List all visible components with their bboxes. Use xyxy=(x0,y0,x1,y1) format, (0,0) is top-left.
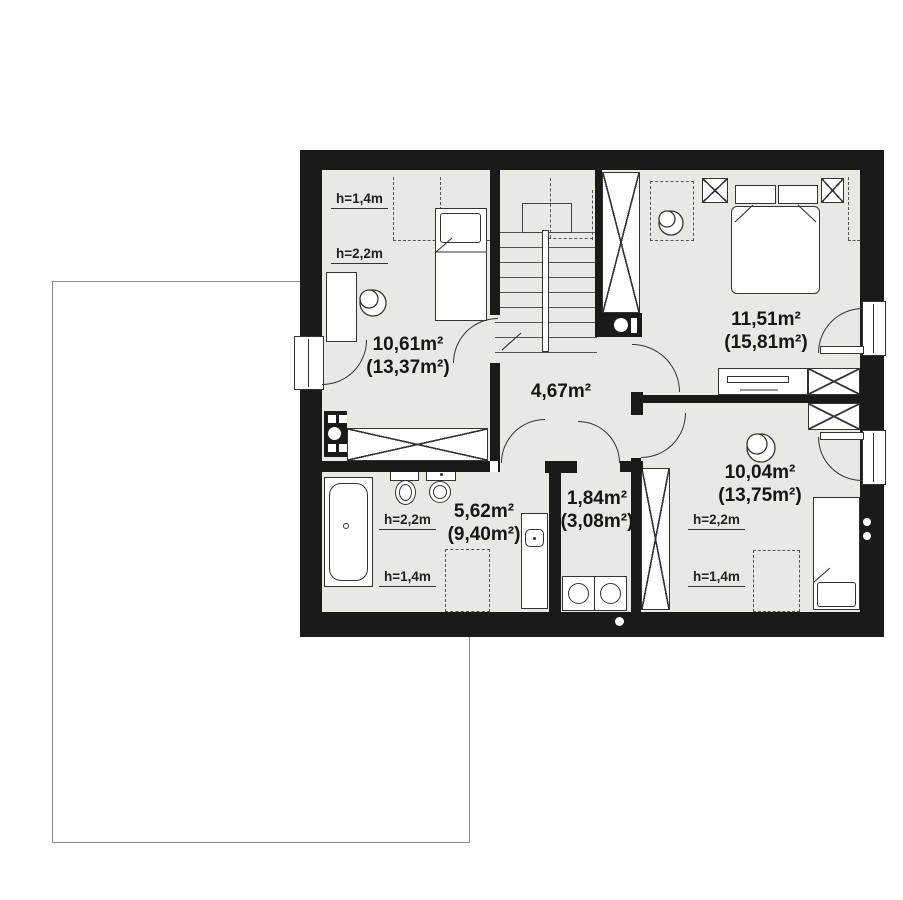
height-label-high-bedroom-left: h=2,2m xyxy=(331,247,388,264)
chimney-flue-4 xyxy=(339,444,347,452)
roof-line-dashed-right xyxy=(848,177,849,240)
wardrobe-hall-column xyxy=(602,172,640,313)
roof-line-dashed-right-h xyxy=(848,240,860,241)
area-value: 11,51m² xyxy=(701,309,831,332)
wall-laundry-bedroom xyxy=(631,458,641,612)
height-label-high-bedroom-bottom: h=2,2m xyxy=(688,513,745,530)
wall-dot-right-2 xyxy=(863,532,871,540)
door-jamb-bathroom xyxy=(490,461,498,472)
stairs-landing xyxy=(522,203,572,233)
window-glass-line xyxy=(308,339,309,387)
chimney-vent-circle xyxy=(614,318,628,332)
bed-double-pillow-right xyxy=(778,185,818,204)
height-label-low-bedroom-left: h=1,4m xyxy=(331,192,388,209)
wardrobe-partition-bottom xyxy=(808,403,860,430)
height-label-low-bathroom: h=1,4m xyxy=(379,570,436,587)
stairs-handrail xyxy=(542,230,549,352)
wall-exterior-right xyxy=(860,150,884,637)
height-label-low-bedroom-bottom: h=1,4m xyxy=(688,570,745,587)
desk-dashed-top-right xyxy=(650,181,694,241)
area-label-bedroom-left: 10,61m² (13,37m²) xyxy=(343,334,473,380)
stairs-dashed-line-1 xyxy=(550,178,551,238)
area-value: 4,67m² xyxy=(496,381,626,404)
bed-pillow-right xyxy=(817,582,856,607)
wall-exterior-left xyxy=(300,150,322,637)
wall-dot-right-1 xyxy=(863,518,871,526)
area-value: 1,84m² xyxy=(532,488,662,511)
wall-hall-stub xyxy=(631,392,643,415)
desk-left xyxy=(326,272,357,342)
bathtub xyxy=(329,483,368,581)
floor-plan-page: 10,61m² (13,37m²) 11,51m² (15,81m²) 4,67… xyxy=(0,0,903,900)
cabinet-top-2 xyxy=(821,178,844,203)
wall-bedroom-left-hall xyxy=(490,363,500,472)
area-label-hallway: 4,67m² xyxy=(496,381,626,404)
area-label-bathroom: 5,62m² (9,40m²) xyxy=(419,501,549,547)
wall-dot-bottom xyxy=(615,617,624,626)
height-label-high-bathroom: h=2,2m xyxy=(379,513,436,530)
bathtub-drain xyxy=(343,523,349,529)
floor-area-value: (13,75m²) xyxy=(695,485,825,508)
toilet-bowl-inner xyxy=(399,484,412,501)
wall-bedroom-left-stairs xyxy=(490,170,500,315)
desk-partition-drawer xyxy=(727,376,789,383)
bidet-button xyxy=(440,473,443,476)
floor-area-value: (9,40m²) xyxy=(419,524,549,547)
wardrobe-partition-top xyxy=(808,368,860,395)
stairs-dashed-line-2 xyxy=(548,238,593,239)
chimney-flue-2 xyxy=(339,415,347,423)
cabinet-top-1 xyxy=(702,178,728,203)
washer-drum xyxy=(568,583,589,604)
door-leaf-window-bottom-right xyxy=(820,432,864,440)
wall-bathroom-top xyxy=(322,461,490,472)
area-label-bedroom-bottom-right: 10,04m² (13,75m²) xyxy=(695,462,825,508)
area-value: 10,04m² xyxy=(695,462,825,485)
chimney-flue-1 xyxy=(328,415,336,423)
stairs-dashed-line-3 xyxy=(592,190,593,240)
area-value: 5,62m² xyxy=(419,501,549,524)
area-label-laundry: 1,84m² (3,08m²) xyxy=(532,488,662,534)
chimney-vent-slot xyxy=(631,318,637,333)
window-glass-line xyxy=(873,433,874,482)
bed-double xyxy=(731,206,820,294)
bed-double-pillow-left xyxy=(735,185,776,204)
bed-pillow xyxy=(440,213,481,243)
window-glass-line xyxy=(873,304,874,353)
window-bedroom-bottom-right xyxy=(862,430,886,485)
dryer-drum xyxy=(600,583,621,604)
floor-area-value: (3,08m²) xyxy=(532,511,662,534)
area-value: 10,61m² xyxy=(343,334,473,357)
chimney-flue-3 xyxy=(328,444,336,452)
window-bedroom-top-right xyxy=(862,301,886,356)
floor-area-value: (13,37m²) xyxy=(343,357,473,380)
roof-zone-dashed-bathroom xyxy=(445,549,490,612)
chimney-flue-round xyxy=(328,427,341,440)
wardrobe-bedroom-left xyxy=(347,428,488,461)
bidet-bowl-inner xyxy=(433,485,447,499)
roof-line-dashed-v1 xyxy=(393,177,394,240)
wall-bedrooms-partition xyxy=(643,395,860,403)
wall-exterior-bottom xyxy=(300,612,884,637)
floor-area-value: (15,81m²) xyxy=(701,332,831,355)
wall-exterior-top xyxy=(300,150,884,170)
roof-zone-dashed-bottom-right xyxy=(753,550,800,612)
wall-stairs-bedroom xyxy=(595,170,602,337)
window-bedroom-left xyxy=(294,336,324,390)
area-label-bedroom-top-right: 11,51m² (15,81m²) xyxy=(701,309,831,355)
